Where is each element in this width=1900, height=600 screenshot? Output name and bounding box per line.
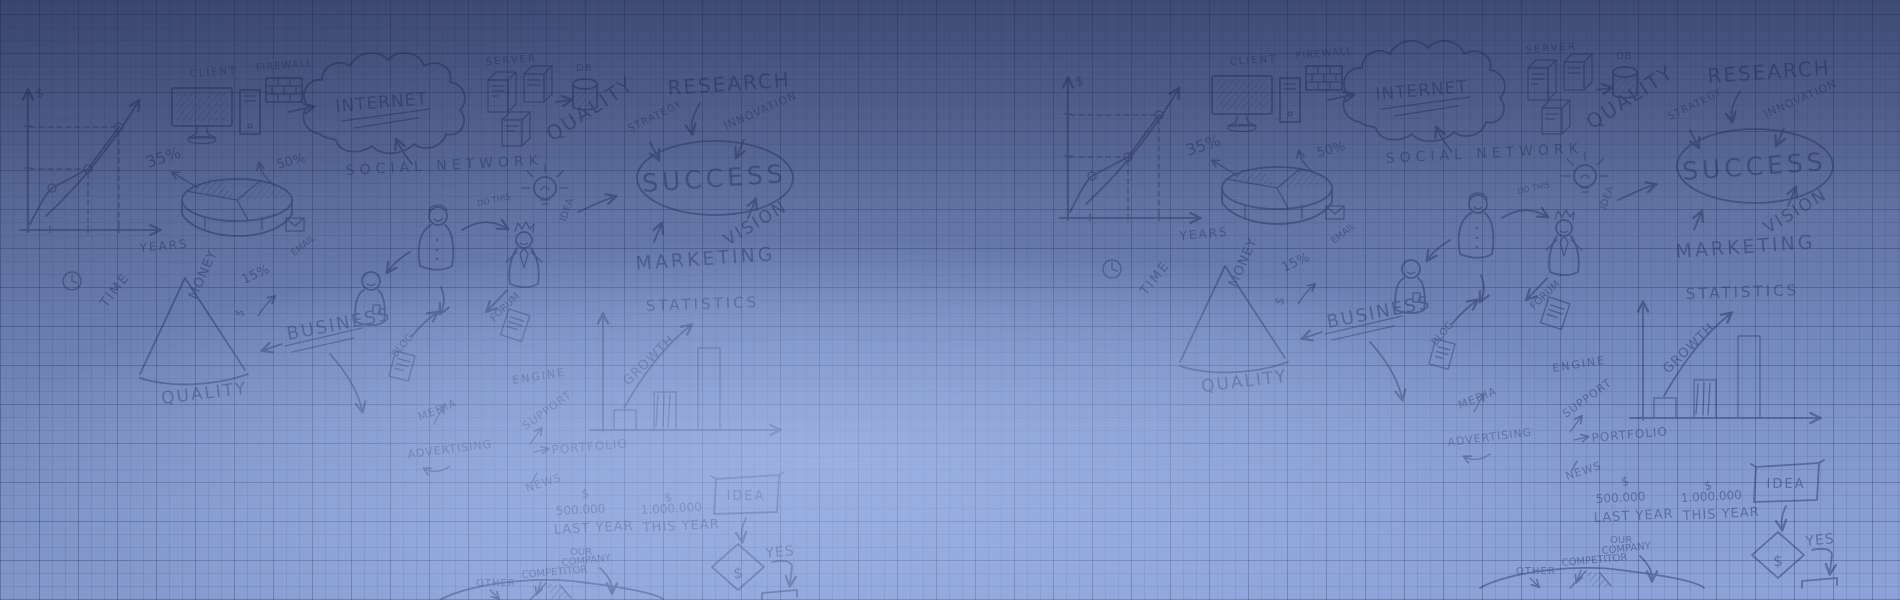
hero-banner-background: $ YEARS 35% CLIENT [0,0,1900,600]
glow-overlay [0,0,1900,600]
